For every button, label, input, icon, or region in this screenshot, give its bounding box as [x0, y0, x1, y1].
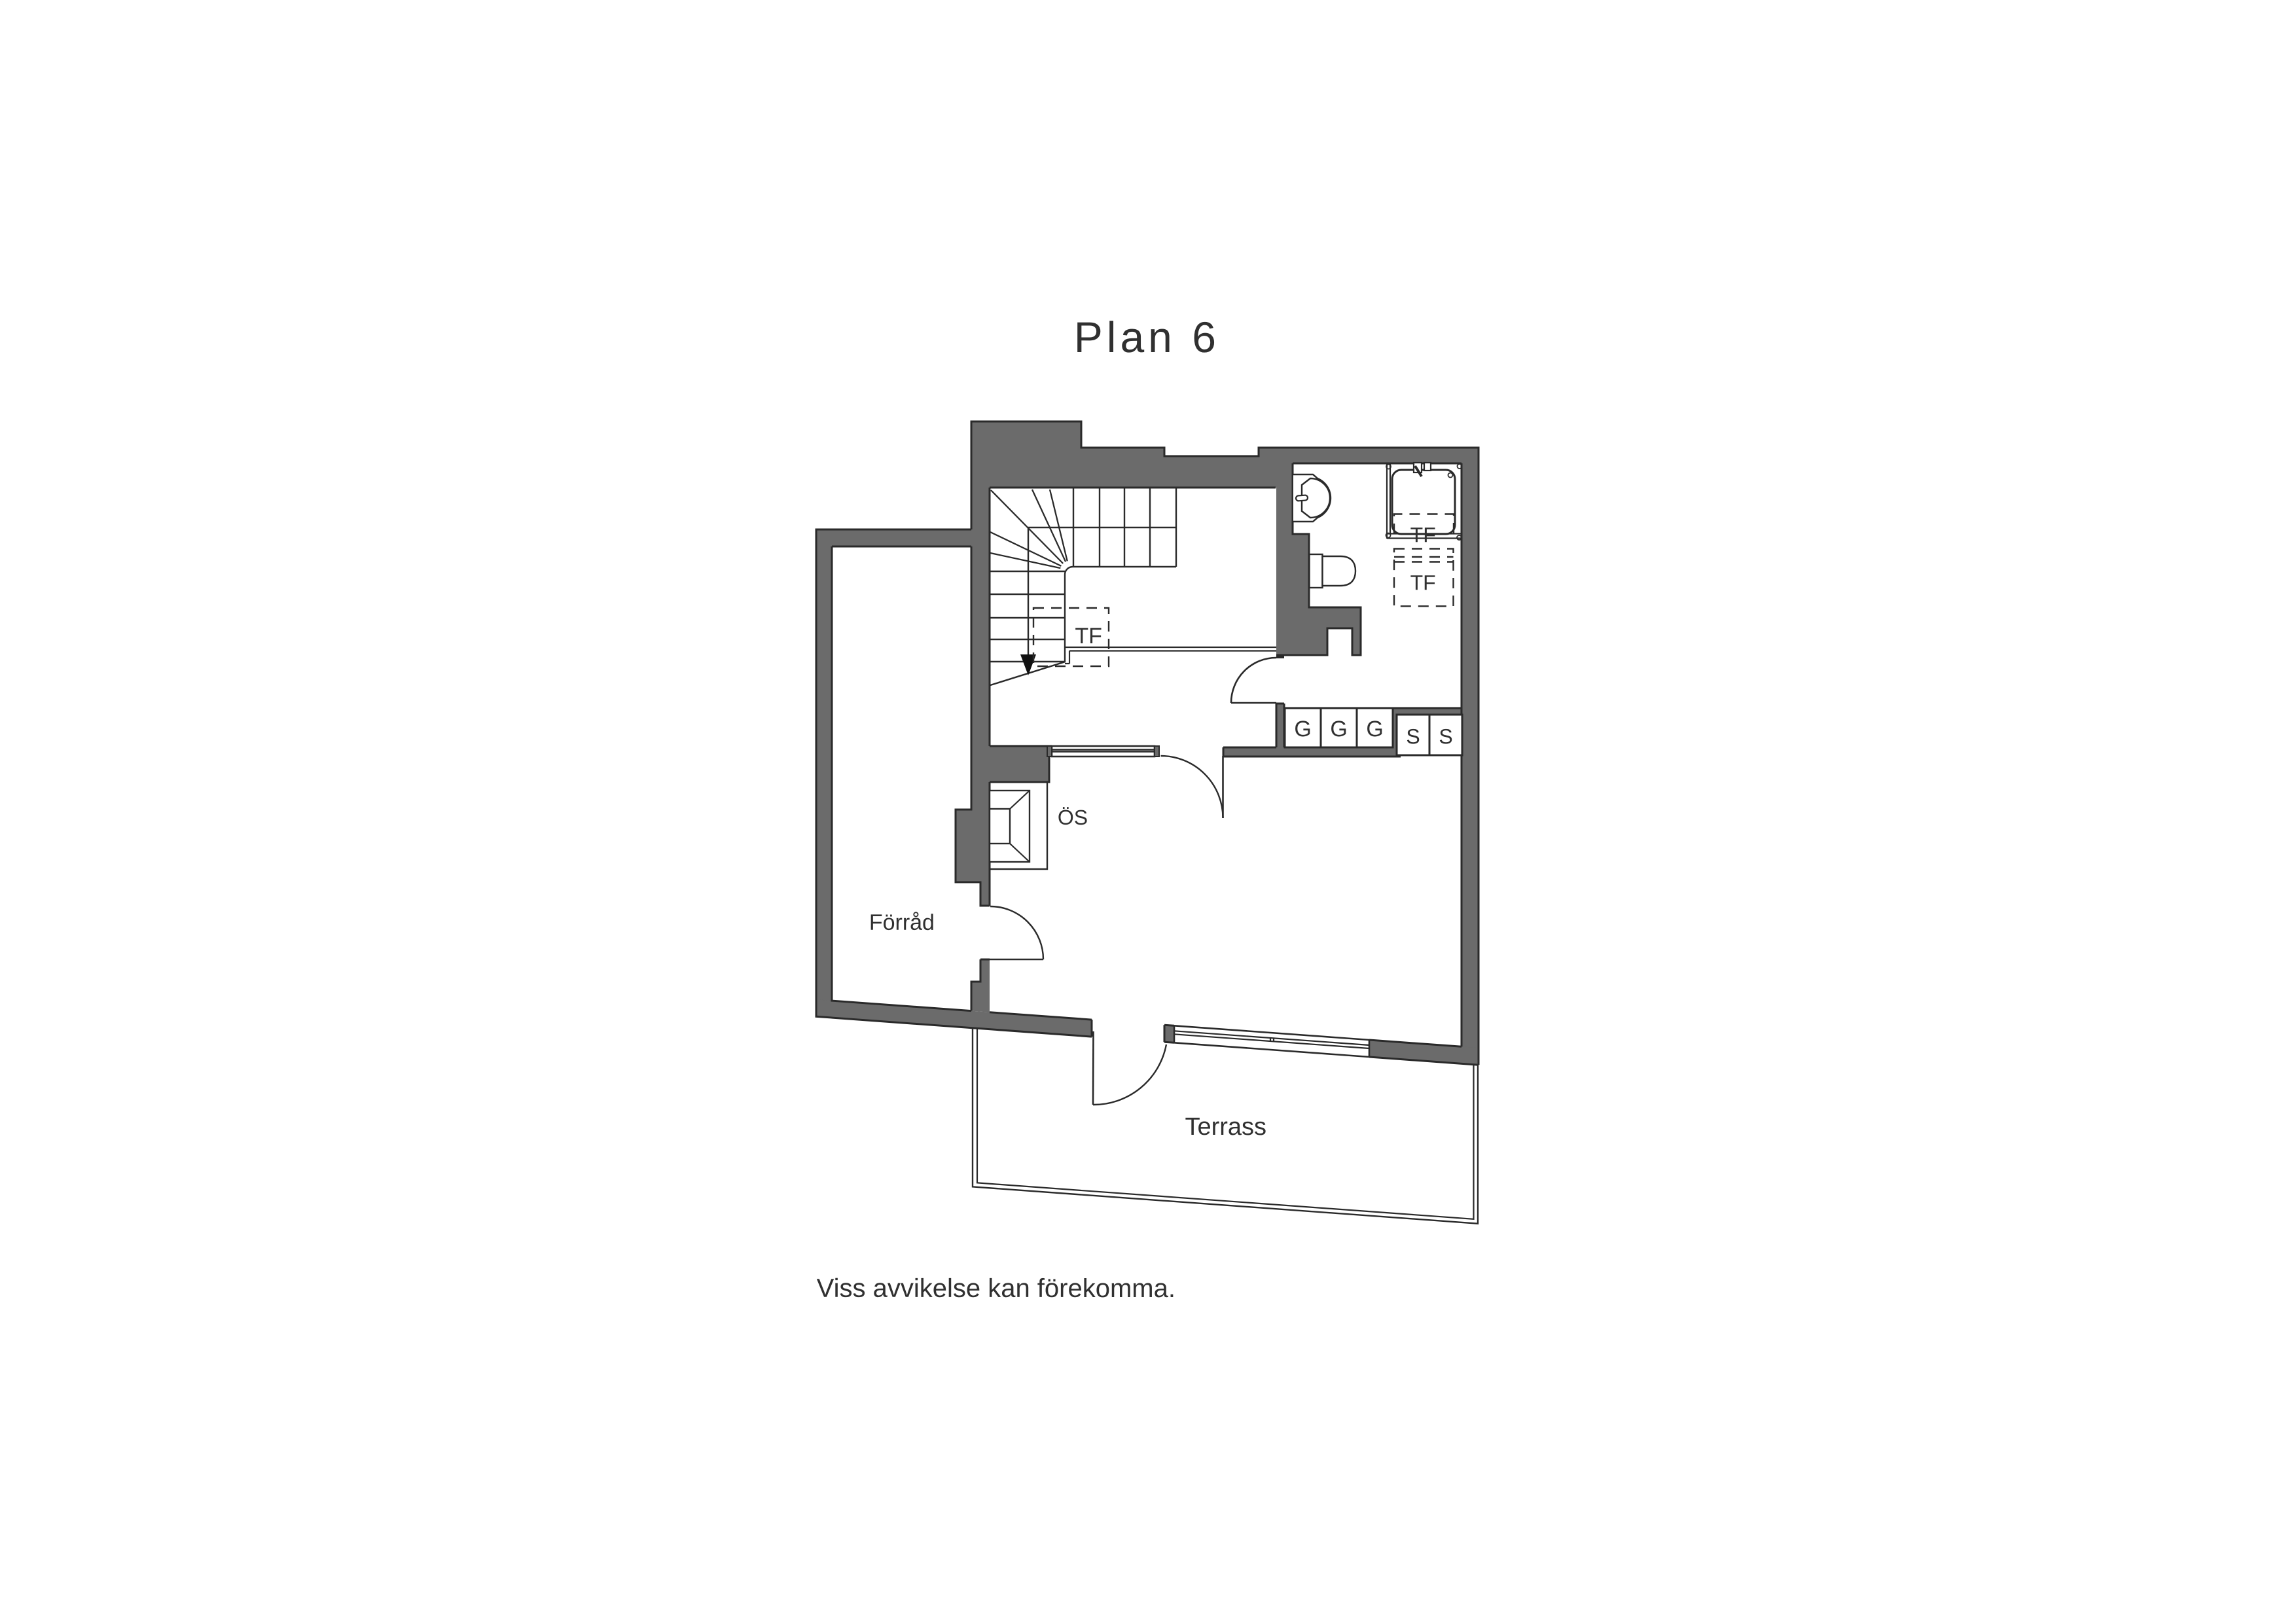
svg-text:S: S — [1406, 724, 1420, 748]
svg-text:S: S — [1439, 724, 1452, 748]
svg-text:Viss avvikelse kan förekomma.: Viss avvikelse kan förekomma. — [817, 1274, 1175, 1303]
svg-text:Plan 6: Plan 6 — [1074, 313, 1220, 361]
svg-text:Terrass: Terrass — [1185, 1113, 1266, 1141]
svg-text:TF: TF — [1410, 571, 1436, 594]
svg-text:G: G — [1330, 717, 1347, 741]
svg-text:ÖS: ÖS — [1058, 806, 1088, 829]
svg-text:TF: TF — [1410, 523, 1436, 546]
svg-text:G: G — [1366, 717, 1383, 741]
svg-text:Förråd: Förråd — [869, 910, 935, 935]
svg-text:TF: TF — [1075, 624, 1102, 649]
svg-text:G: G — [1294, 717, 1311, 741]
